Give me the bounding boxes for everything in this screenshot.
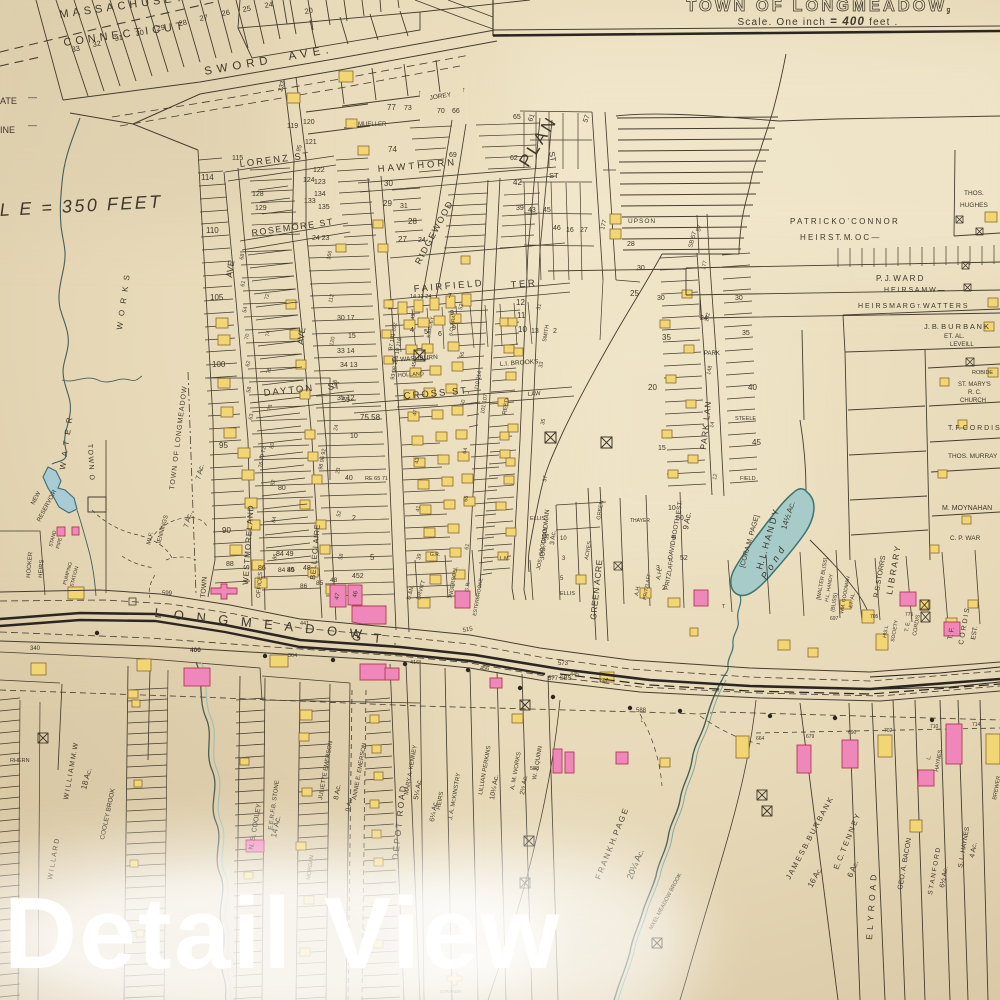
svg-text:702: 702	[884, 728, 893, 734]
svg-text:34 13: 34 13	[340, 362, 358, 369]
svg-text:STEELE: STEELE	[735, 416, 756, 422]
svg-text:27: 27	[398, 235, 407, 244]
svg-text:120: 120	[303, 119, 315, 126]
svg-text:35: 35	[662, 333, 671, 342]
svg-text:3: 3	[656, 565, 660, 572]
svg-text:74: 74	[388, 145, 397, 154]
svg-text:RE 65 71: RE 65 71	[365, 476, 388, 482]
svg-text:L.M.: L.M.	[500, 556, 510, 562]
svg-text:UPSON: UPSON	[628, 218, 656, 225]
svg-text:G.R.: G.R.	[430, 552, 440, 558]
svg-text:58: 58	[246, 386, 253, 393]
svg-text:42: 42	[513, 178, 522, 187]
svg-text:73: 73	[404, 105, 412, 112]
svg-text:88: 88	[226, 561, 234, 568]
svg-text:—: —	[28, 120, 37, 130]
svg-text:84: 84	[271, 516, 278, 523]
svg-text:63: 63	[248, 413, 255, 420]
svg-text:85: 85	[316, 580, 324, 587]
svg-text:THOS. MURRAY: THOS. MURRAY	[948, 453, 998, 460]
svg-text:110: 110	[206, 226, 219, 235]
svg-text:10: 10	[518, 325, 527, 334]
svg-text:115: 115	[232, 155, 243, 162]
svg-text:10: 10	[560, 536, 567, 542]
svg-text:Detail View: Detail View	[4, 878, 562, 990]
svg-text:119: 119	[287, 123, 298, 130]
svg-text:14: 14	[709, 421, 716, 428]
svg-text:24: 24	[264, 0, 274, 10]
svg-text:135: 135	[318, 204, 330, 211]
svg-text:82: 82	[270, 479, 277, 486]
svg-text:66: 66	[463, 495, 470, 502]
svg-text:THOS.: THOS.	[964, 190, 984, 197]
svg-text:ET. AL.: ET. AL.	[944, 333, 965, 340]
svg-text:4: 4	[410, 327, 414, 334]
svg-text:95: 95	[219, 441, 228, 450]
svg-text:15: 15	[658, 445, 666, 452]
svg-text:105: 105	[210, 293, 224, 302]
svg-text:MUELLER: MUELLER	[358, 122, 387, 128]
svg-text:340: 340	[30, 646, 41, 652]
svg-text:M. MOYNAHAN: M. MOYNAHAN	[942, 505, 992, 512]
svg-text:86: 86	[272, 553, 279, 560]
svg-text:55: 55	[342, 397, 350, 404]
svg-text:679: 679	[806, 734, 815, 740]
svg-text:↑: ↑	[418, 90, 422, 97]
svg-text:35: 35	[540, 418, 547, 425]
svg-text:CHURCH: CHURCH	[960, 398, 986, 404]
svg-text:24: 24	[333, 424, 340, 431]
svg-text:133: 133	[304, 198, 316, 205]
svg-text:52: 52	[336, 510, 343, 517]
svg-text:86: 86	[258, 565, 266, 572]
svg-text:16: 16	[566, 227, 574, 234]
svg-text:70: 70	[244, 333, 251, 340]
svg-text:122: 122	[313, 167, 325, 174]
svg-text:43: 43	[528, 207, 536, 214]
svg-text:35: 35	[742, 330, 750, 337]
svg-text:ELLIS: ELLIS	[530, 516, 545, 522]
svg-text:134: 134	[314, 191, 326, 198]
svg-text:31: 31	[536, 303, 543, 310]
svg-text:5: 5	[370, 553, 375, 562]
svg-text:28: 28	[408, 217, 417, 226]
svg-text:123: 123	[314, 179, 326, 186]
svg-text:2: 2	[352, 515, 356, 522]
svg-text:452: 452	[352, 573, 364, 580]
svg-text:ROBIDE: ROBIDE	[972, 370, 993, 376]
svg-text:31: 31	[114, 33, 124, 43]
svg-text:64: 64	[462, 447, 469, 454]
svg-text:690: 690	[848, 730, 857, 736]
svg-text:33: 33	[538, 361, 545, 368]
svg-text:121: 121	[305, 139, 317, 146]
svg-text:23: 23	[335, 467, 342, 474]
svg-text:INE: INE	[0, 125, 15, 135]
svg-text:—: —	[28, 92, 37, 102]
svg-text:69: 69	[449, 152, 457, 159]
svg-text:C. P. WAR: C. P. WAR	[950, 535, 981, 542]
svg-text:40: 40	[345, 475, 353, 482]
svg-text:100: 100	[212, 360, 226, 369]
svg-text:60: 60	[460, 399, 467, 406]
svg-text:29: 29	[156, 23, 166, 33]
svg-text:61: 61	[464, 543, 471, 550]
svg-text:28: 28	[178, 18, 188, 28]
svg-text:25: 25	[630, 289, 639, 298]
svg-text:11: 11	[517, 311, 526, 320]
svg-text:56: 56	[459, 351, 466, 358]
svg-text:664: 664	[756, 736, 765, 742]
svg-text:12: 12	[516, 298, 525, 307]
svg-text:RHERN: RHERN	[10, 758, 30, 764]
svg-text:573: 573	[558, 661, 569, 667]
svg-text:58: 58	[338, 553, 345, 560]
svg-text:41: 41	[415, 505, 422, 512]
svg-text:80: 80	[278, 485, 286, 492]
svg-text:714: 714	[972, 722, 981, 728]
svg-text:30: 30	[135, 28, 145, 38]
svg-text:27: 27	[199, 13, 209, 23]
svg-text:6: 6	[438, 331, 442, 338]
svg-text:62: 62	[245, 360, 252, 367]
svg-text:50: 50	[676, 515, 684, 522]
svg-text:588: 588	[530, 766, 539, 772]
svg-text:12: 12	[712, 473, 719, 480]
svg-text:39: 39	[416, 553, 423, 560]
svg-text:LAW: LAW	[528, 391, 542, 398]
svg-text:705: 705	[870, 614, 879, 620]
svg-text:HUGHES: HUGHES	[960, 202, 988, 209]
svg-text:62: 62	[510, 155, 518, 162]
svg-text:697: 697	[830, 616, 839, 622]
svg-text:28: 28	[627, 241, 635, 248]
svg-text:R. C.: R. C.	[968, 390, 982, 396]
svg-text:26: 26	[221, 8, 231, 18]
svg-text:T. F. C O R D I S: T. F. C O R D I S	[948, 425, 1000, 432]
svg-text:24 23: 24 23	[312, 235, 330, 242]
svg-text:114: 114	[201, 173, 214, 182]
svg-text:30: 30	[637, 265, 645, 272]
svg-text:7: 7	[448, 293, 452, 300]
svg-text:45: 45	[752, 438, 761, 447]
svg-text:39: 39	[544, 533, 551, 540]
svg-text:33: 33	[71, 44, 81, 54]
svg-text:20: 20	[648, 383, 657, 392]
svg-text:128: 128	[252, 191, 264, 198]
svg-text:24: 24	[418, 237, 426, 244]
svg-text:↓: ↓	[640, 717, 644, 724]
svg-text:129: 129	[255, 205, 267, 212]
svg-text:29: 29	[383, 199, 392, 208]
svg-text:84 49: 84 49	[278, 567, 295, 574]
svg-text:30: 30	[657, 295, 665, 302]
svg-text:5: 5	[672, 535, 676, 542]
svg-text:H E I R S A.M.W —: H E I R S A.M.W —	[884, 287, 945, 294]
svg-text:Scale. One inch = 400 feet .: Scale. One inch = 400 feet .	[737, 16, 898, 28]
svg-text:LEVEILL: LEVEILL	[950, 342, 974, 348]
svg-text:10: 10	[668, 505, 676, 512]
svg-text:47: 47	[412, 409, 419, 416]
svg-text:31: 31	[400, 203, 408, 210]
svg-text:15: 15	[348, 333, 356, 340]
svg-text:TOWN OF LONGMEADOW,: TOWN OF LONGMEADOW,	[686, 0, 954, 15]
svg-text:124: 124	[303, 177, 315, 184]
svg-text:TER: TER	[510, 278, 537, 291]
svg-text:↑: ↑	[462, 87, 466, 94]
svg-text:54: 54	[242, 306, 249, 313]
svg-text:61: 61	[240, 280, 247, 287]
svg-text:72: 72	[264, 293, 271, 300]
svg-text:32: 32	[92, 39, 102, 49]
svg-text:ELLIS: ELLIS	[560, 591, 575, 597]
svg-text:ST: ST	[549, 171, 559, 180]
svg-text:30 17: 30 17	[337, 315, 355, 322]
svg-text:10: 10	[350, 433, 358, 440]
svg-text:39: 39	[516, 205, 524, 212]
svg-text:13: 13	[531, 328, 539, 335]
svg-text:PARK: PARK	[704, 351, 720, 357]
svg-text:ST. MARY'S: ST. MARY'S	[958, 382, 991, 388]
svg-text:37: 37	[542, 475, 549, 482]
svg-text:ST: ST	[547, 151, 558, 163]
svg-text:FIELD: FIELD	[740, 476, 756, 482]
svg-text:14 12 24: 14 12 24	[410, 294, 431, 300]
svg-text:588: 588	[636, 708, 647, 714]
svg-text:70: 70	[437, 108, 445, 115]
svg-text:46: 46	[553, 225, 561, 232]
svg-text:30: 30	[384, 179, 393, 188]
svg-text:H E I R S T. M. O C —: H E I R S T. M. O C —	[800, 233, 879, 242]
svg-text:68: 68	[239, 253, 246, 260]
svg-text:30: 30	[735, 295, 743, 302]
svg-text:2: 2	[662, 585, 666, 592]
svg-text:45: 45	[543, 207, 551, 214]
svg-text:43: 43	[414, 457, 421, 464]
svg-text:H E I R S M A R G T. W A T: H E I R S M A R G T. W A T T E R S	[858, 303, 968, 310]
svg-text:52: 52	[680, 555, 688, 562]
svg-text:77: 77	[387, 103, 396, 112]
svg-text:78: 78	[267, 404, 274, 411]
svg-text:710: 710	[930, 724, 939, 730]
svg-text:90: 90	[222, 526, 231, 535]
svg-text:40: 40	[748, 383, 757, 392]
svg-text:66: 66	[452, 108, 460, 115]
svg-text:80: 80	[269, 442, 276, 449]
svg-text:48: 48	[330, 577, 338, 584]
svg-text:65: 65	[513, 114, 521, 121]
svg-text:48: 48	[303, 565, 311, 572]
svg-text:49: 49	[410, 313, 417, 320]
svg-text:P. J. W A R D: P. J. W A R D	[876, 274, 924, 283]
svg-text:45: 45	[411, 361, 418, 368]
svg-text:27: 27	[580, 227, 588, 234]
svg-text:52: 52	[458, 303, 465, 310]
svg-text:445: 445	[570, 672, 579, 678]
svg-text:775: 775	[905, 612, 914, 618]
svg-text:P A T R I C K O ’ C O N N O: P A T R I C K O ’ C O N N O R	[790, 217, 898, 226]
svg-text:86: 86	[300, 583, 308, 590]
svg-text:ATE: ATE	[0, 96, 17, 106]
svg-text:20: 20	[304, 6, 314, 16]
svg-text:25: 25	[242, 4, 252, 14]
svg-text:J. B. B U R B A N K: J. B. B U R B A N K	[924, 322, 989, 331]
svg-text:2: 2	[553, 328, 557, 335]
svg-text:33 14: 33 14	[337, 348, 355, 355]
svg-text:75 58: 75 58	[360, 413, 381, 422]
